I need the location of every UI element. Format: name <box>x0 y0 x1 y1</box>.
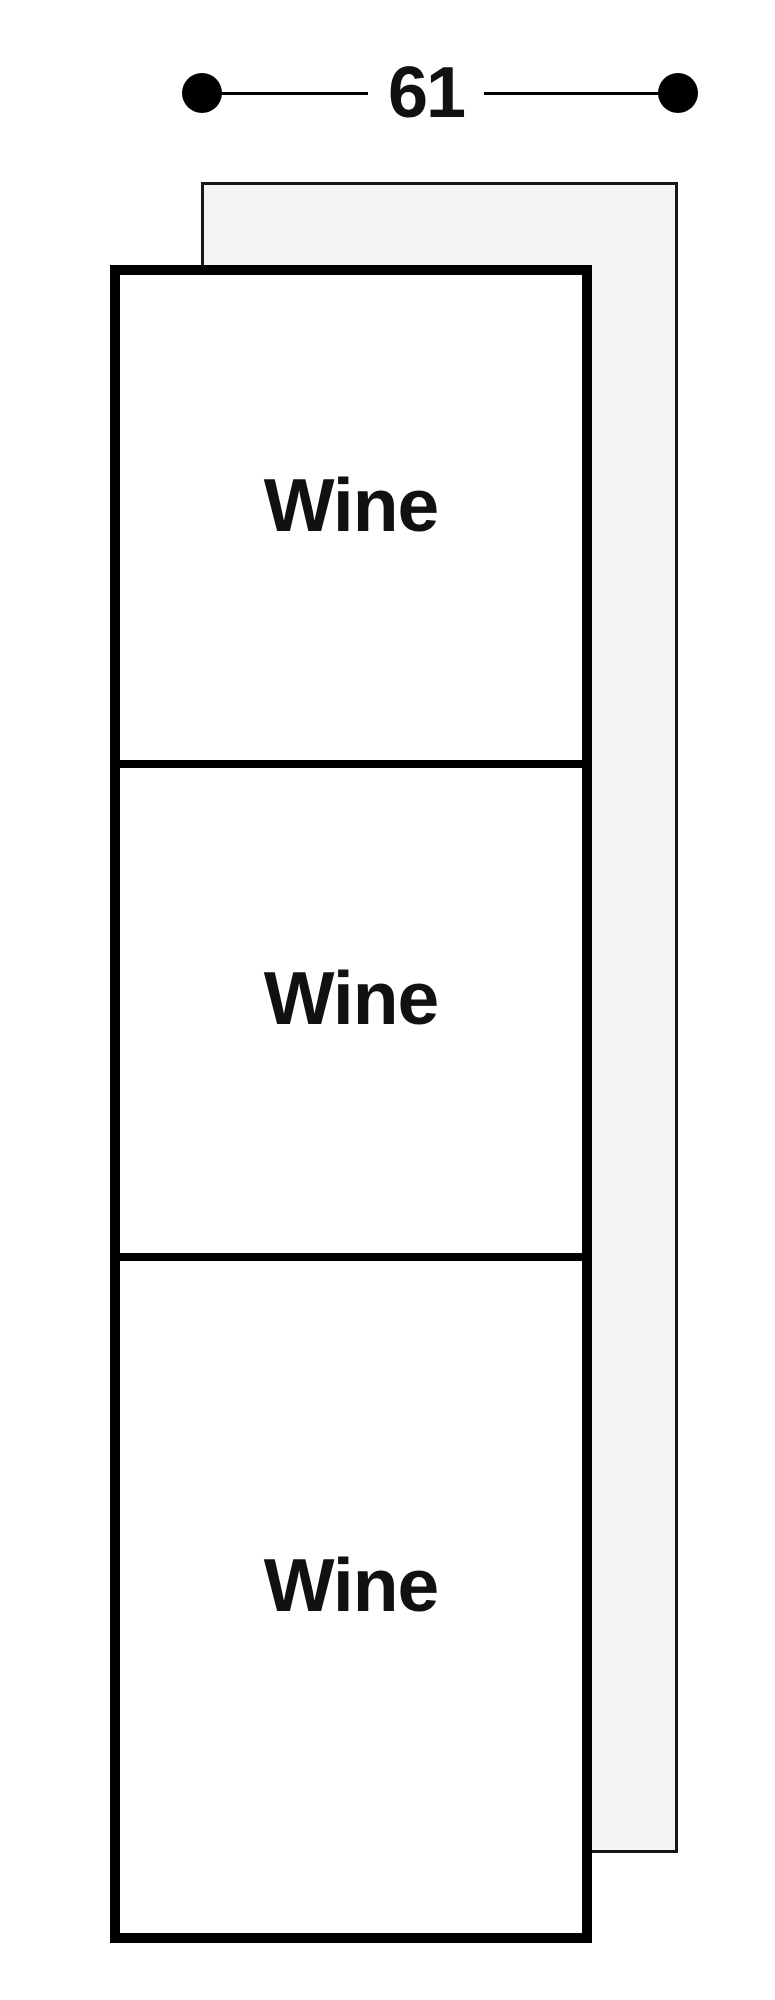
shelf-divider-1 <box>120 760 582 768</box>
wine-column-dimension-diagram: 61 Wine Wine Wine <box>0 0 775 2000</box>
shelf-divider-2 <box>120 1253 582 1261</box>
wine-compartment-1: Wine <box>120 275 582 760</box>
dimension-value: 61 <box>368 57 484 129</box>
compartment-label-3: Wine <box>264 1548 439 1623</box>
dimension-endpoint-left-icon <box>182 73 222 113</box>
width-dimension: 61 <box>182 73 698 113</box>
wine-compartment-3: Wine <box>120 1261 582 1933</box>
compartment-label-1: Wine <box>264 468 439 543</box>
compartment-label-2: Wine <box>264 961 439 1036</box>
wine-compartment-2: Wine <box>120 768 582 1253</box>
wine-cabinet-outline: Wine Wine Wine <box>110 265 592 1943</box>
dimension-endpoint-right-icon <box>658 73 698 113</box>
